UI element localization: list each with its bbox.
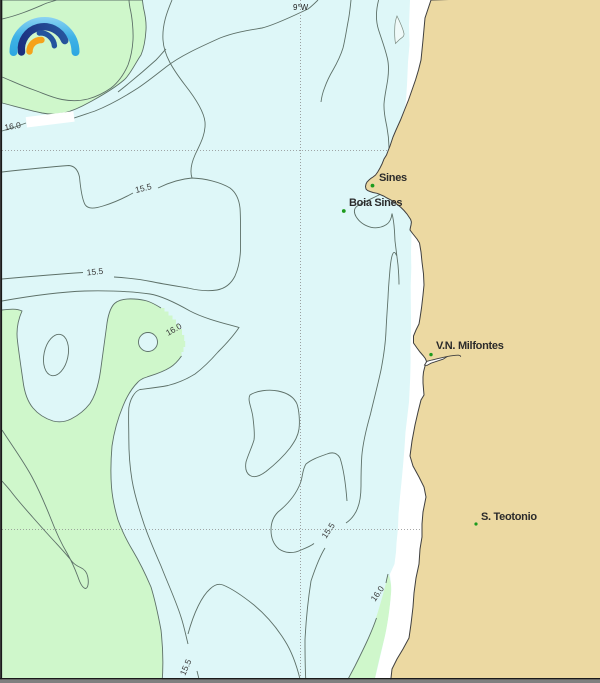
svg-text:9°W: 9°W (293, 3, 309, 12)
svg-text:S. Teotonio: S. Teotonio (481, 511, 537, 523)
svg-text:Sines: Sines (379, 172, 407, 184)
svg-text:Boia Sines: Boia Sines (349, 197, 402, 209)
svg-text:V.N. Milfontes: V.N. Milfontes (436, 340, 504, 352)
svg-text:15.5: 15.5 (86, 266, 104, 278)
